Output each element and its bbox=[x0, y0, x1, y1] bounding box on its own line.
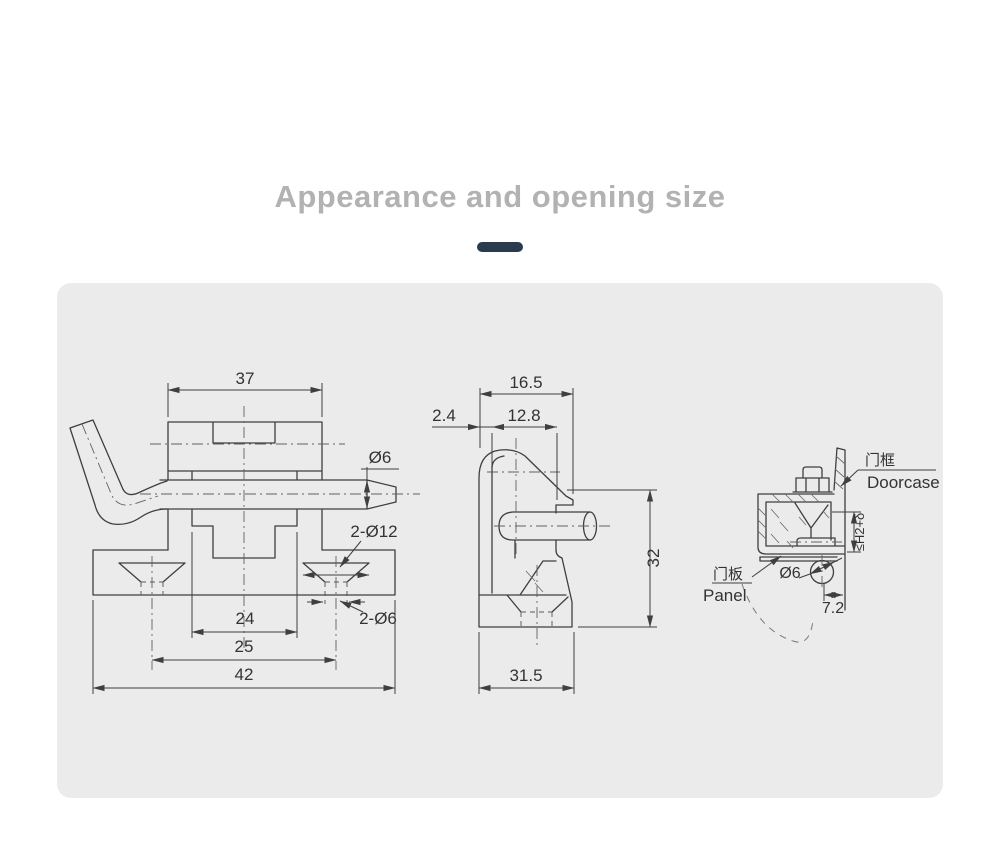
side-view-drawing: 16.5 2.4 12.8 32 31.5 bbox=[432, 373, 663, 694]
side-ext-24-128 bbox=[432, 427, 557, 503]
side-hidden-hole bbox=[521, 612, 552, 627]
front-lever-outline bbox=[70, 420, 167, 524]
front-holes6-label: 2-Ø6 bbox=[359, 609, 397, 628]
front-dim-42-label: 42 bbox=[235, 665, 254, 684]
side-ext-165 bbox=[480, 388, 573, 494]
side-dim-315-label: 31.5 bbox=[509, 666, 542, 685]
side-dim-32-label: 32 bbox=[644, 549, 663, 568]
front-holes12-label: 2-Ø12 bbox=[350, 522, 397, 541]
front-dim-37-label: 37 bbox=[236, 369, 255, 388]
install-dim-clearance-label: ≤H2+δ bbox=[852, 513, 867, 552]
side-dim-128-label: 12.8 bbox=[507, 406, 540, 425]
side-dim-165-label: 16.5 bbox=[509, 373, 542, 392]
install-doorcase-label-cn: 门框 bbox=[865, 452, 895, 469]
front-ext-37 bbox=[168, 383, 322, 417]
front-pin-dia-label: Ø6 bbox=[369, 448, 392, 467]
front-view-drawing: 37 Ø6 2-Ø12 2-Ø6 24 25 42 bbox=[70, 369, 420, 694]
install-bracket-outline bbox=[758, 448, 845, 610]
technical-drawing-canvas: 37 Ø6 2-Ø12 2-Ø6 24 25 42 16.5 bbox=[0, 0, 1000, 850]
front-dim-25-label: 25 bbox=[235, 637, 254, 656]
install-panel-label-en: Panel bbox=[703, 586, 746, 605]
side-centerlines bbox=[487, 438, 612, 645]
front-dim-24-label: 24 bbox=[236, 609, 255, 628]
front-pin-dia-leader bbox=[361, 467, 399, 480]
install-pin-dia-label: Ø6 bbox=[779, 565, 800, 582]
install-dim-72-label: 7.2 bbox=[822, 600, 844, 617]
install-view-drawing: 门框 Doorcase ≤H2+δ Ø6 门板 Panel 7.2 bbox=[703, 448, 940, 642]
install-swing-arc bbox=[742, 584, 813, 642]
install-panel-leader bbox=[752, 556, 781, 577]
front-lever-axis bbox=[82, 424, 158, 505]
side-dim-24-label: 2.4 bbox=[432, 406, 456, 425]
install-doorcase-leader bbox=[841, 470, 858, 486]
install-doorcase-label-en: Doorcase bbox=[867, 473, 940, 492]
install-panel-label-cn: 门板 bbox=[713, 565, 743, 583]
